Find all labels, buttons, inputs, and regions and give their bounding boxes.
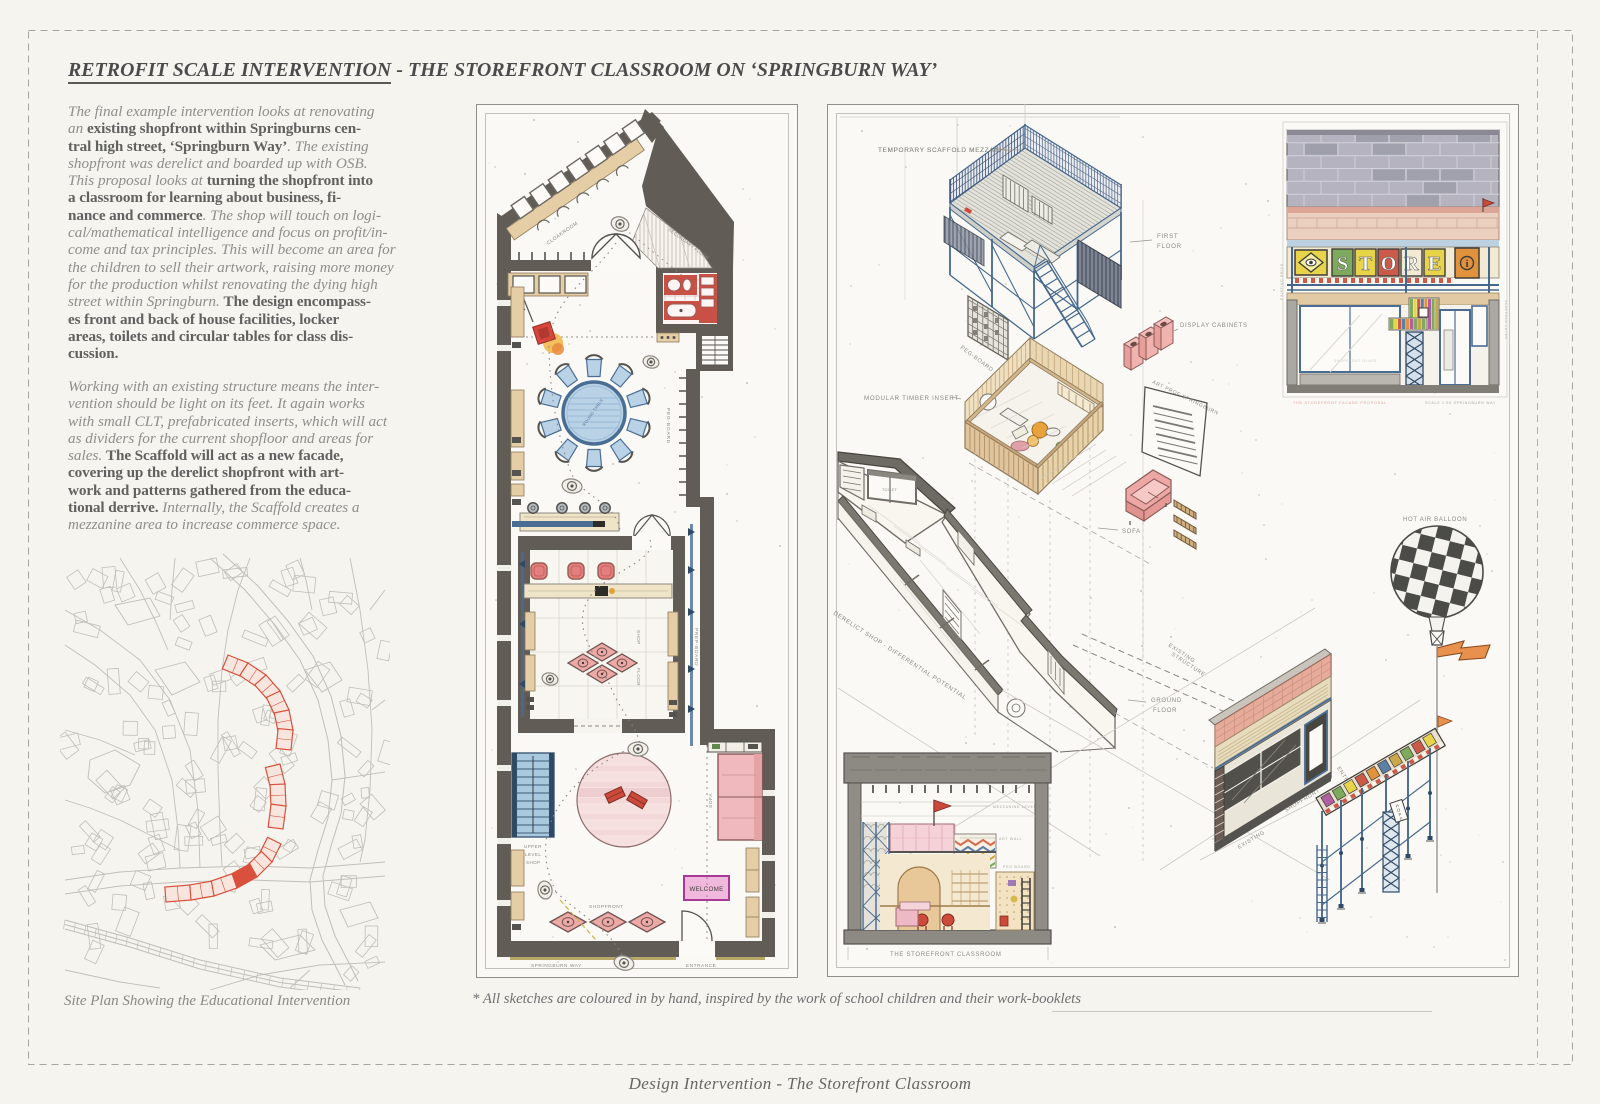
svg-text:O: O [1381,253,1397,275]
svg-text:FIRST: FIRST [1157,233,1178,240]
svg-text:FLOOR: FLOOR [1153,708,1177,714]
svg-text:UPPER: UPPER [524,844,542,849]
svg-text:MEZZANINE LEVEL: MEZZANINE LEVEL [993,805,1036,809]
svg-text:ART WALL: ART WALL [999,837,1022,841]
svg-text:PEG BOARD: PEG BOARD [1003,865,1031,869]
svg-text:SHOPFRONT: SHOPFRONT [589,904,624,910]
svg-text:SPRINGBURN WAY: SPRINGBURN WAY [531,963,582,969]
svg-text:THE STOREFRONT FACADE PROPOSAL: THE STOREFRONT FACADE PROPOSAL [1293,401,1387,405]
svg-text:SOFA: SOFA [708,793,714,808]
svg-text:PEG-BOARD: PEG-BOARD [665,408,671,444]
svg-text:SOFA: SOFA [1122,529,1141,535]
svg-text:LEVEL: LEVEL [525,852,541,857]
svg-text:SCALE 1:50 SPRINGBURN WAY: SCALE 1:50 SPRINGBURN WAY [1425,401,1496,405]
svg-text:FLOOR: FLOOR [636,668,641,686]
svg-text:GROUND: GROUND [1151,698,1182,704]
svg-text:S: S [1337,253,1348,275]
svg-text:THE STOREFRONT CLASSROOM: THE STOREFRONT CLASSROOM [890,952,1002,958]
svg-text:T: T [1359,253,1373,275]
svg-text:SHOP: SHOP [636,630,641,645]
svg-text:i: i [1465,258,1468,270]
svg-text:TEMPORARY SCAFFOLD MEZZANINE: TEMPORARY SCAFFOLD MEZZANINE [878,147,1012,154]
svg-text:FLOOR: FLOOR [1157,243,1182,250]
svg-text:SHOP: SHOP [526,860,541,865]
svg-text:EXISTING BRICK: EXISTING BRICK [1280,263,1284,300]
svg-text:E: E [1428,253,1441,275]
svg-text:DISPLAY CABINETS: DISPLAY CABINETS [1180,323,1248,329]
svg-text:WELCOME: WELCOME [689,886,723,893]
svg-text:SCAFFOLD LAYER: SCAFFOLD LAYER [1504,300,1508,340]
svg-text:ENTRANCE: ENTRANCE [686,963,716,969]
svg-text:HOT AIR BALLOON: HOT AIR BALLOON [1403,517,1467,523]
svg-text:PREP-BOARD: PREP-BOARD [694,628,699,666]
svg-text:MODULAR TIMBER INSERT: MODULAR TIMBER INSERT [864,395,959,402]
